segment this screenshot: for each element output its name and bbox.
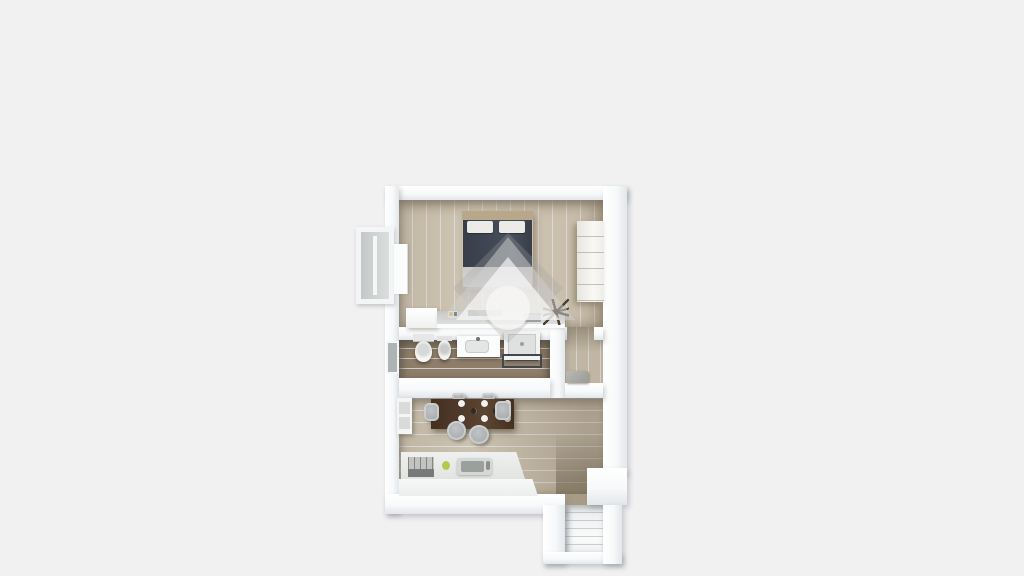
vanity-sink <box>457 336 500 357</box>
kitchen-sink <box>457 458 492 475</box>
side-cabinet <box>406 308 437 328</box>
bidet <box>437 336 452 360</box>
cooktop <box>408 457 434 477</box>
towel-rack <box>502 354 542 368</box>
sink-faucet <box>486 461 490 470</box>
floorplan-render <box>0 0 1024 576</box>
balcony-window-box <box>356 227 394 304</box>
wall-bedroom-closet <box>594 327 603 340</box>
plate <box>458 400 465 407</box>
double-bed <box>462 211 533 285</box>
wall-closet-living <box>565 383 603 398</box>
wall-top <box>385 186 627 200</box>
wall-bathroom-closet <box>550 327 565 398</box>
plant <box>543 299 569 325</box>
bathroom-window <box>386 341 399 374</box>
bed-headboard <box>462 211 533 220</box>
desk-lamp <box>448 311 458 318</box>
bottle <box>471 408 476 414</box>
vanity-faucet <box>476 337 480 341</box>
pillow-left <box>467 221 493 233</box>
bed-base <box>463 287 532 290</box>
fridge <box>397 398 412 434</box>
dining-chair <box>424 403 439 421</box>
wardrobe <box>577 221 604 302</box>
kitchen-counter-front <box>399 479 538 496</box>
toilet-bowl <box>415 341 432 362</box>
wall-bathroom-living <box>399 378 550 398</box>
bedroom-window <box>394 244 408 294</box>
dining-chair <box>469 425 489 444</box>
pillow-right <box>499 221 525 233</box>
vestibule-wall-right <box>603 505 622 564</box>
laptop <box>524 313 541 322</box>
wall-bottom <box>385 494 565 514</box>
wall-corner-step <box>587 468 627 505</box>
sink-basin <box>461 461 484 472</box>
bidet-bowl <box>438 340 451 360</box>
plate <box>481 400 488 407</box>
dining-chair <box>447 421 466 440</box>
toilet <box>413 334 434 362</box>
vanity-basin <box>465 340 489 353</box>
wall-right <box>603 186 627 474</box>
entrance-corridor-floor <box>565 494 587 505</box>
dining-chair <box>495 401 511 420</box>
doormat <box>566 371 588 383</box>
front-door <box>565 505 603 552</box>
bed-foot-blanket <box>463 267 532 287</box>
shower-drain <box>520 342 524 346</box>
plate <box>481 415 488 422</box>
tv <box>468 310 502 316</box>
green-item <box>442 461 450 470</box>
